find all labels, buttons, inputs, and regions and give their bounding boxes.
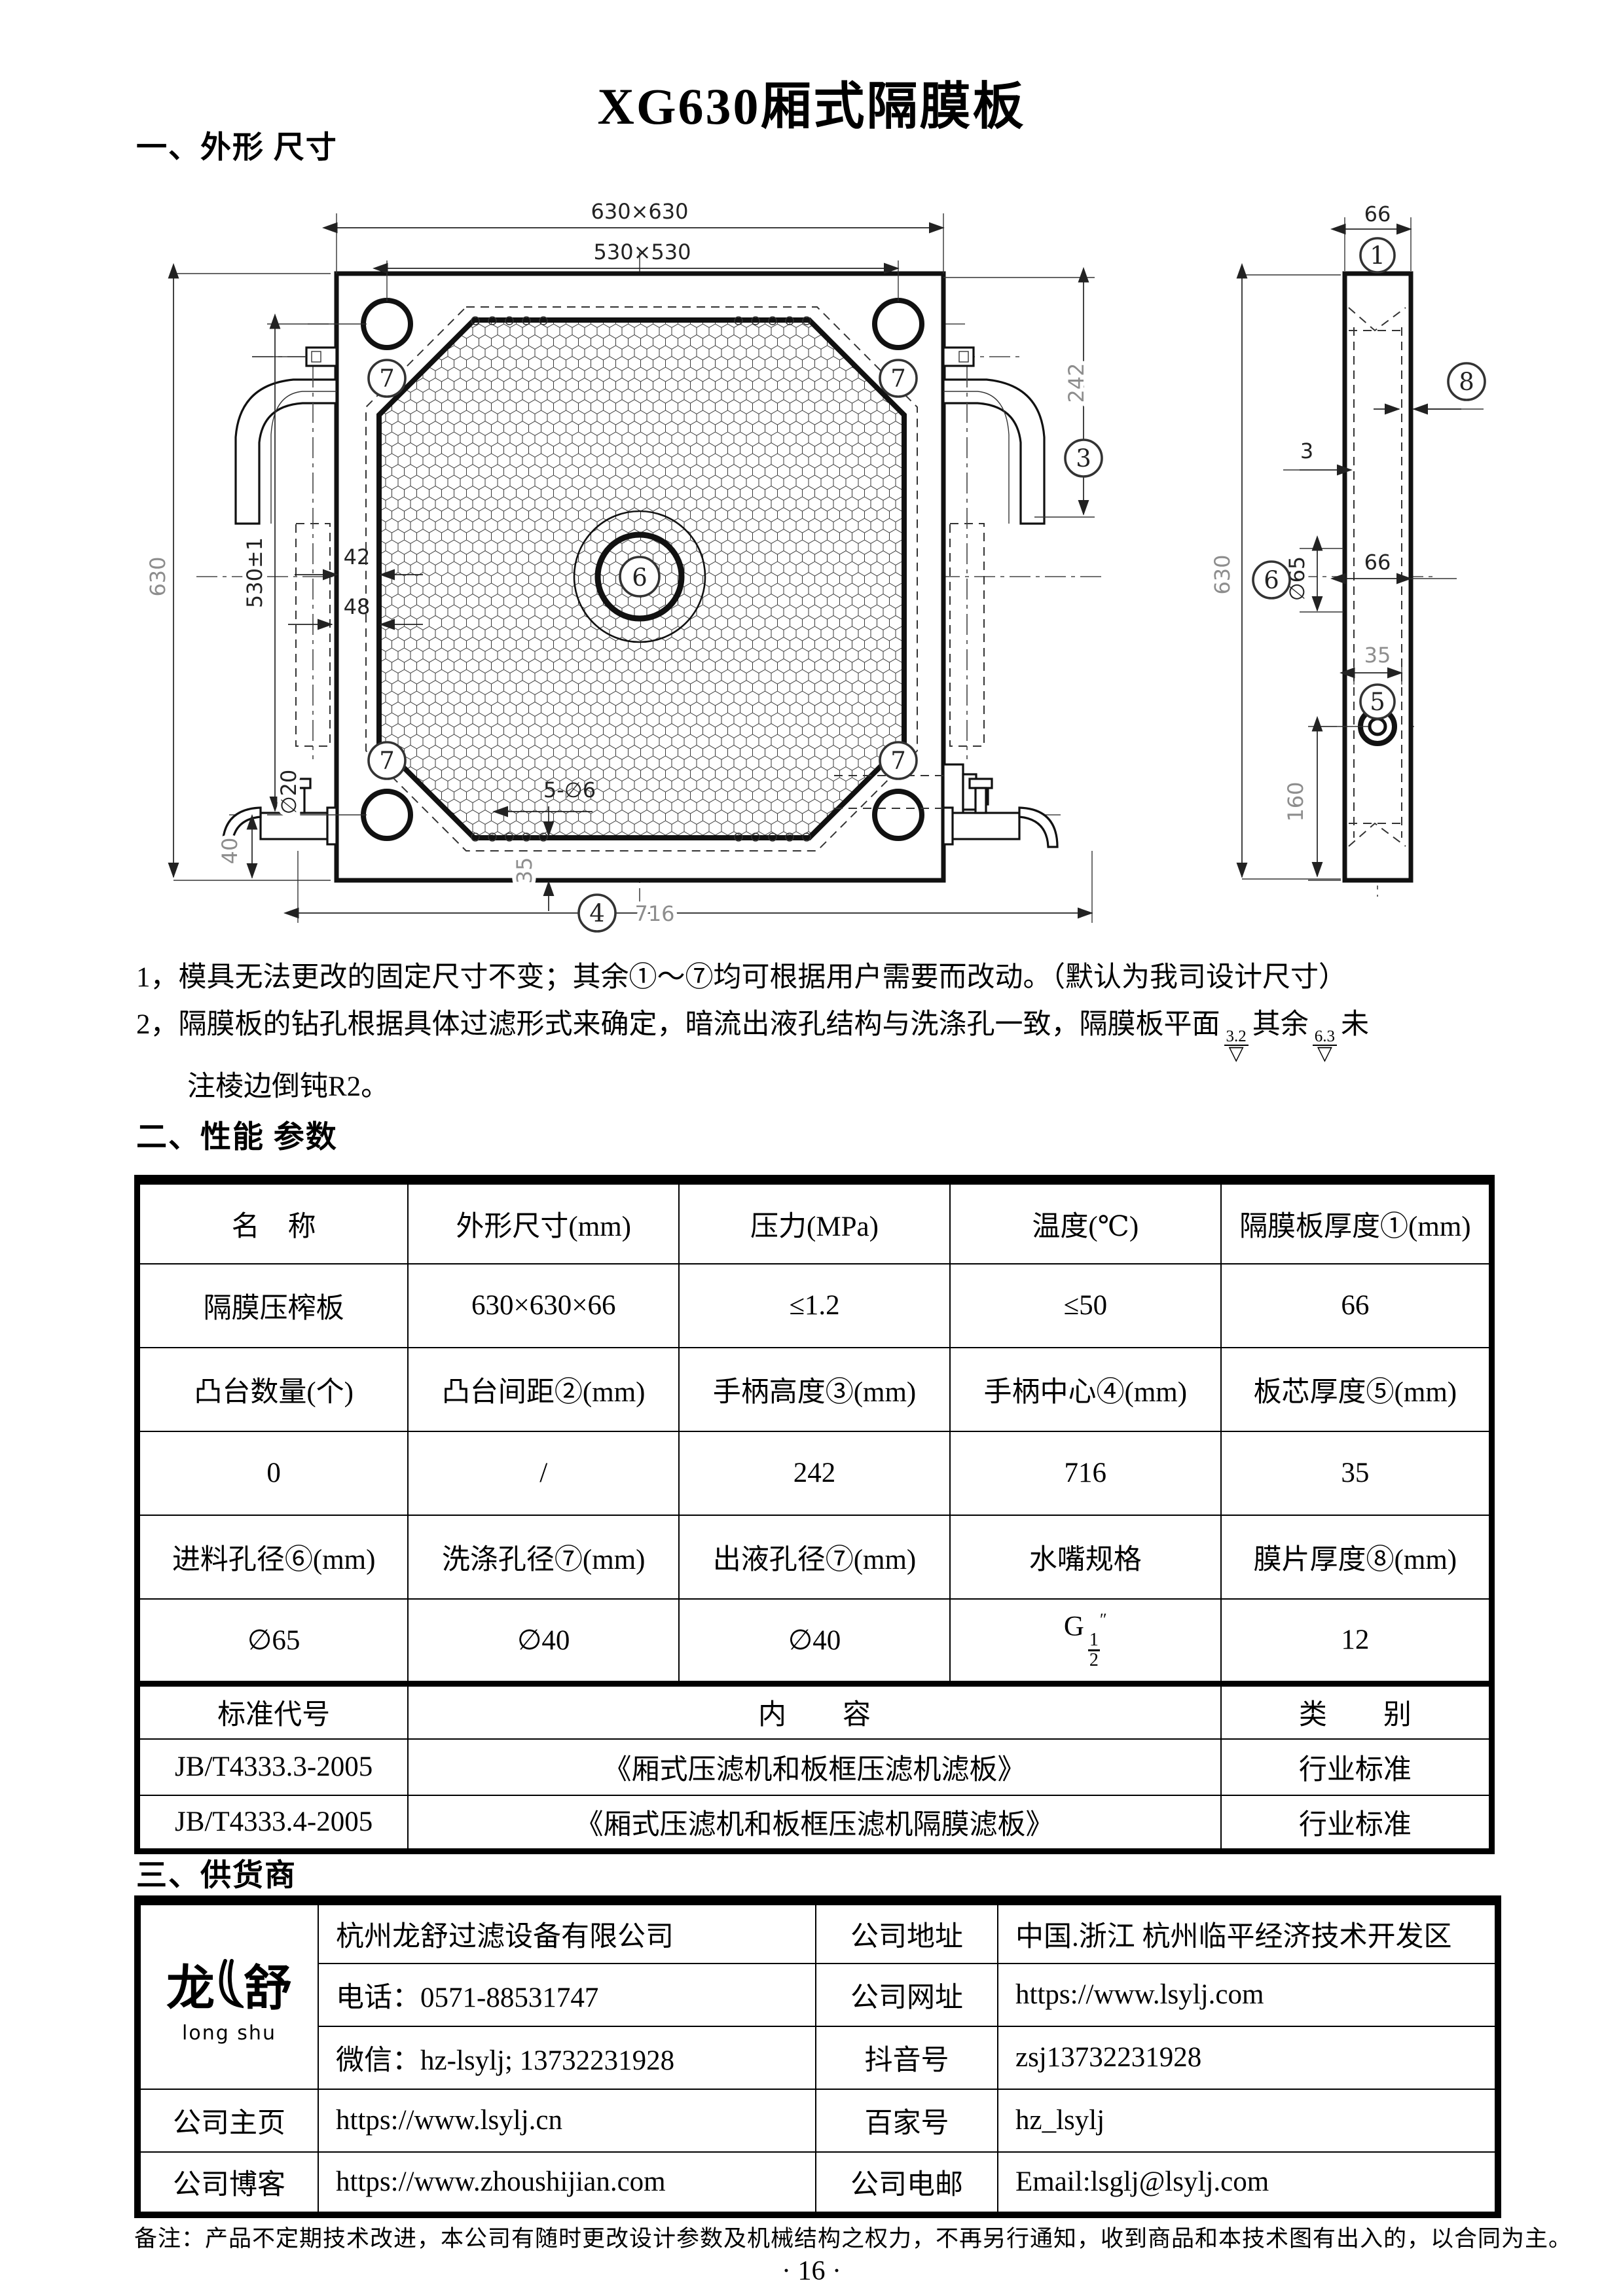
table-row: 名 称 外形尺寸(mm) 压力(MPa) 温度(℃) 隔膜板厚度①(mm) [137,1180,1492,1264]
performance-table: 名 称 外形尺寸(mm) 压力(MPa) 温度(℃) 隔膜板厚度①(mm) 隔膜… [134,1175,1495,1854]
svg-text:5: 5 [1370,688,1385,716]
note-1: 1，模具无法更改的固定尺寸不变；其余①～⑦均可根据用户需要而改动。（默认为我司设… [136,954,1524,1001]
company-email: Email:lsglj@lsylj.com [998,2152,1498,2215]
cell: ∅40 [679,1599,950,1684]
company-address: 中国.浙江 杭州临平经济技术开发区 [998,1901,1498,1964]
wash-hole [363,791,410,838]
cell: ≤1.2 [679,1264,950,1348]
callout-7: 7 [369,360,405,397]
side-dim-height: 630 [1210,554,1235,594]
cell: 水嘴规格 [950,1515,1221,1599]
company-baijia: hz_lsylj [998,2089,1498,2152]
standard-code: JB/T4333.3-2005 [137,1739,409,1795]
table-row: 公司博客 https://www.zhoushijian.com 公司电邮 Em… [137,2152,1498,2215]
cell: 类 别 [1221,1684,1492,1739]
standards-row: JB/T4333.3-2005 《厢式压滤机和板框压滤机滤板》 行业标准 [137,1739,1492,1795]
cell: 压力(MPa) [679,1180,950,1264]
section-heading-outline: 一、外形 尺寸 [136,122,338,167]
dim-inner: 530×530 [594,240,691,264]
cell: 进料孔径⑥(mm) [137,1515,409,1599]
cell: 凸台数量(个) [137,1348,409,1431]
field-label: 抖音号 [816,2026,998,2089]
roughness-icon: ▽ [1229,1044,1244,1064]
dim-holes: 5-∅6 [543,778,596,802]
cell: ∅65 [137,1599,409,1684]
standard-content: 《厢式压滤机和板框压滤机隔膜滤板》 [408,1795,1220,1852]
dim-242: 242 [1064,363,1089,403]
dim-left: 630 [145,556,170,596]
callout-1: 1 [1360,238,1395,272]
wash-hole [875,300,922,348]
side-dim-core: 35 [1364,643,1391,668]
cell: 12 [1221,1599,1492,1684]
footer-note: 备注：产品不定期技术改进，本公司有随时更改设计参数及机械结构之权力，不再另行通知… [134,2220,1522,2253]
cell: 630×630×66 [408,1264,679,1348]
side-outline [1345,274,1411,880]
field-label: 公司网址 [816,1964,998,2026]
standards-row: JB/T4333.4-2005 《厢式压滤机和板框压滤机隔膜滤板》 行业标准 [137,1795,1492,1852]
table-row: 进料孔径⑥(mm) 洗涤孔径⑦(mm) 出液孔径⑦(mm) 水嘴规格 膜片厚度⑧… [137,1515,1492,1599]
technical-drawing: 630×630 530×530 630 530±1 42 48 242 5-∅6… [0,196,1623,949]
roughness-icon: ▽ [1317,1044,1332,1064]
callout-4: 4 [579,895,615,931]
fraction: 12 [1088,1631,1100,1670]
table-row: 凸台数量(个) 凸台间距②(mm) 手柄高度③(mm) 手柄中心④(mm) 板芯… [137,1348,1492,1431]
svg-text:7: 7 [890,747,906,775]
wash-hole [363,300,410,348]
cell: 手柄高度③(mm) [679,1348,950,1431]
company-douyin: zsj13732231928 [998,2026,1498,2089]
bolt-right [943,348,974,366]
cell: 66 [1221,1264,1492,1348]
dim-48: 48 [344,594,371,619]
section-heading-supplier: 三、供货商 [136,1850,297,1895]
table-row: 0 / 242 716 35 [137,1431,1492,1515]
dim-left-inner: 530±1 [242,537,267,608]
field-label: 公司电邮 [816,2152,998,2215]
company-logo: 龙 舒 long shu [137,1901,318,2089]
cell: 温度(℃) [950,1180,1221,1264]
svg-text:6: 6 [1264,566,1279,594]
callout-5: 5 [1360,685,1395,719]
dim-716: 716 [634,901,674,926]
svg-text:7: 7 [890,365,906,393]
callout-7: 7 [880,360,917,397]
cell: 标准代号 [137,1684,409,1739]
cell: 膜片厚度⑧(mm) [1221,1515,1492,1599]
table-row: 公司主页 https://www.lsylj.cn 百家号 hz_lsylj [137,2089,1498,2152]
company-homepage: https://www.lsylj.cn [318,2089,816,2152]
cell: 隔膜板厚度①(mm) [1221,1180,1492,1264]
side-dim-width-top: 66 [1364,202,1391,226]
table-row: 隔膜压榨板 630×630×66 ≤1.2 ≤50 66 [137,1264,1492,1348]
callout-8: 8 [1448,363,1485,400]
cell: ∅40 [408,1599,679,1684]
svg-text:3: 3 [1076,444,1091,473]
standard-category: 行业标准 [1221,1739,1492,1795]
dim-d20: ∅20 [276,770,301,815]
side-dim-width-mid: 66 [1364,550,1391,575]
cell: 凸台间距②(mm) [408,1348,679,1431]
cell: / [408,1431,679,1515]
datasheet-page: XG630厢式隔膜板 一、外形 尺寸 [0,0,1623,2296]
drawing-notes: 1，模具无法更改的固定尺寸不变；其余①～⑦均可根据用户需要而改动。（默认为我司设… [136,954,1524,1111]
cell: 名 称 [137,1180,409,1264]
table-row: 微信：hz-lsylj; 13732231928 抖音号 zsj13732231… [137,2026,1498,2089]
roughness-symbol: 6.3▽ [1313,1028,1337,1064]
company-wechat: 微信：hz-lsylj; 13732231928 [318,2026,816,2089]
cell: 外形尺寸(mm) [408,1180,679,1264]
company-name: 杭州龙舒过滤设备有限公司 [318,1901,816,1964]
note-2-cont: 注棱边倒钝R2。 [136,1064,1524,1111]
table-row: 龙 舒 long shu 杭州龙舒过滤设备有限公司 公司地址 中国.浙江 杭州临… [137,1901,1498,1964]
callout-6: 6 [1253,562,1290,598]
cell: ≤50 [950,1264,1221,1348]
wash-hole [875,791,922,838]
svg-text:7: 7 [379,365,395,393]
side-view: 66 630 3 ∅65 66 35 160 1 8 6 5 [1210,202,1485,897]
standard-content: 《厢式压滤机和板框压滤机滤板》 [408,1739,1220,1795]
callout-6: 6 [620,557,659,596]
svg-text:6: 6 [632,564,647,592]
dim-35: 35 [512,857,537,884]
roughness-symbol: 3.2▽ [1224,1028,1249,1064]
company-phone: 电话：0571-88531747 [318,1964,816,2026]
cell: 隔膜压榨板 [137,1264,409,1348]
company-blog: https://www.zhoushijian.com [318,2152,816,2215]
cell: 出液孔径⑦(mm) [679,1515,950,1599]
svg-text:1: 1 [1370,242,1385,270]
cell-nozzle-spec: G12″ [950,1599,1221,1684]
cell: 洗涤孔径⑦(mm) [408,1515,679,1599]
bolt-left [306,348,337,366]
dim-outer: 630×630 [591,199,689,224]
cell: 手柄中心④(mm) [950,1348,1221,1431]
side-dim-3: 3 [1300,439,1313,463]
standard-code: JB/T4333.4-2005 [137,1795,409,1852]
table-row: ∅65 ∅40 ∅40 G12″ 12 [137,1599,1492,1684]
logo-char: 龙 [166,1949,215,2019]
svg-text:8: 8 [1459,368,1474,396]
side-dim-160: 160 [1283,781,1308,821]
logo-char: 舒 [244,1949,292,2019]
svg-text:7: 7 [379,747,395,775]
page-number: · 16 · [0,2255,1623,2287]
handle-right [943,367,1044,759]
dim-40: 40 [217,838,242,865]
cell: 716 [950,1431,1221,1515]
supplier-table: 龙 舒 long shu 杭州龙舒过滤设备有限公司 公司地址 中国.浙江 杭州临… [134,1895,1501,2218]
cell: 0 [137,1431,409,1515]
logo-swoosh-icon [215,1958,244,2009]
front-view: 630×630 530×530 630 530±1 42 48 242 5-∅6… [145,199,1106,931]
table-row: 电话：0571-88531747 公司网址 https://www.lsylj.… [137,1964,1498,2026]
callout-7: 7 [369,742,405,779]
callout-3: 3 [1065,440,1102,476]
standard-category: 行业标准 [1221,1795,1492,1852]
svg-text:4: 4 [589,899,605,927]
section-heading-performance: 二、性能 参数 [136,1111,338,1157]
dim-42: 42 [344,545,371,569]
field-label: 公司地址 [816,1901,998,1964]
note-2: 2，隔膜板的钻孔根据具体过滤形式来确定，暗流出液孔结构与洗涤孔一致，隔膜板平面3… [136,1001,1524,1064]
company-website: https://www.lsylj.com [998,1964,1498,2026]
standards-header-row: 标准代号 内 容 类 别 [137,1684,1492,1739]
logo-subtext: long shu [141,2022,318,2045]
cell: 内 容 [408,1684,1220,1739]
callout-7: 7 [880,742,917,779]
cell: 35 [1221,1431,1492,1515]
cell: 板芯厚度⑤(mm) [1221,1348,1492,1431]
field-label: 公司博客 [137,2152,318,2215]
field-label: 百家号 [816,2089,998,2152]
cell: 242 [679,1431,950,1515]
field-label: 公司主页 [137,2089,318,2152]
